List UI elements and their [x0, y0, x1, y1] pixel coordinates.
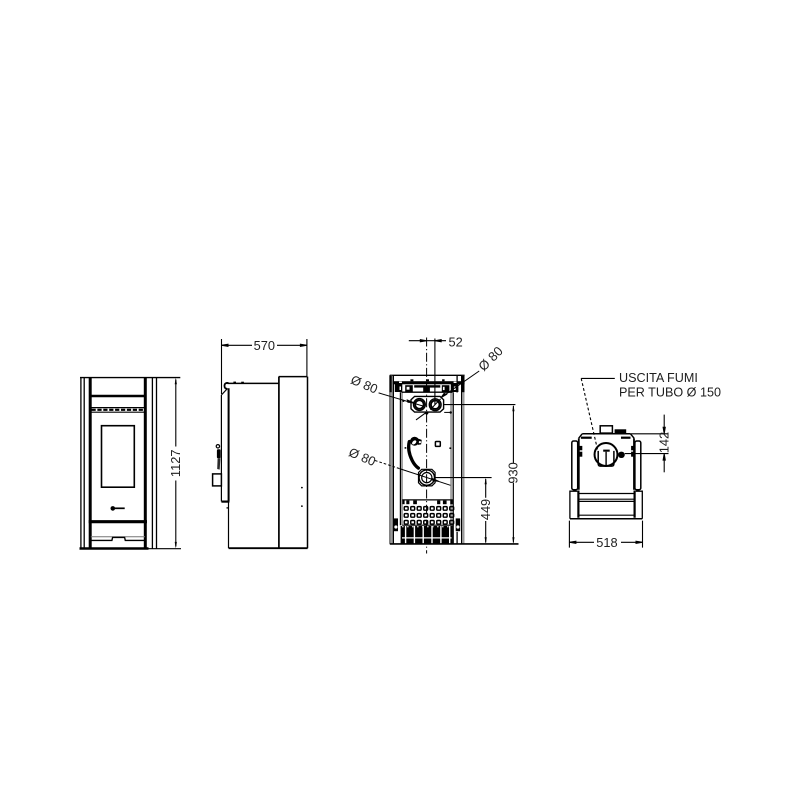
svg-text:570: 570 [254, 338, 275, 353]
svg-text:930: 930 [506, 462, 521, 483]
svg-text:52: 52 [449, 334, 463, 349]
svg-text:PER TUBO Ø 150: PER TUBO Ø 150 [619, 385, 721, 399]
svg-text:1127: 1127 [168, 450, 183, 478]
svg-text:USCITA FUMI: USCITA FUMI [619, 371, 698, 385]
svg-text:142: 142 [656, 432, 671, 453]
svg-text:449: 449 [478, 499, 493, 520]
svg-text:518: 518 [596, 535, 617, 550]
